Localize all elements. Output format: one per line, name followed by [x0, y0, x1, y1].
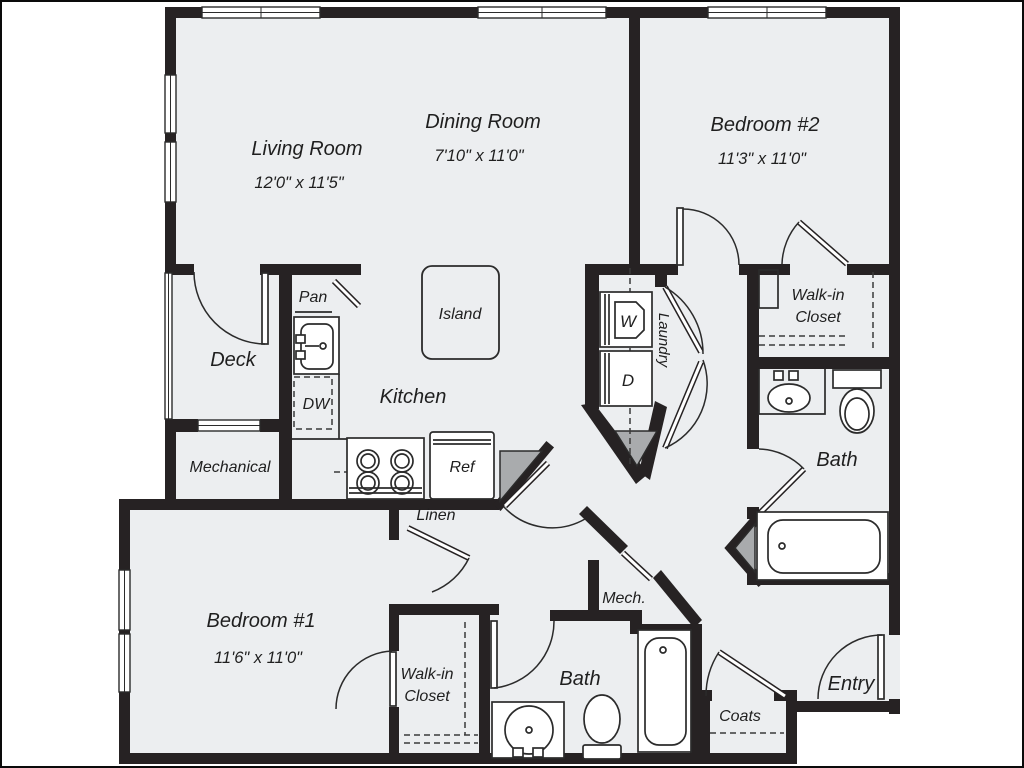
- laundry-label: Laundry: [655, 313, 672, 369]
- bath1-bathtub-icon: [638, 630, 691, 752]
- stove-icon: [347, 438, 424, 499]
- bedroom2-dims: 11'3" x 11'0": [718, 150, 807, 168]
- island-label: Island: [439, 306, 483, 323]
- living-room-dims: 12'0" x 11'5": [254, 174, 344, 192]
- refrigerator-label: Ref: [450, 459, 476, 476]
- washer-label: W: [620, 312, 638, 331]
- closet2-label-2: Closet: [795, 309, 841, 326]
- kitchen-sink-icon: [294, 317, 339, 374]
- pantry-label: Pan: [299, 289, 328, 306]
- window-bedroom2-top: [708, 7, 826, 18]
- floorplan-canvas: Living Room 12'0" x 11'5" Dining Room 7'…: [0, 0, 1024, 768]
- bath1-label: Bath: [559, 668, 600, 690]
- closet1-label-2: Closet: [404, 688, 450, 705]
- bath2-label: Bath: [816, 449, 857, 471]
- living-room-label: Living Room: [251, 138, 362, 160]
- bedroom2-label: Bedroom #2: [711, 114, 820, 136]
- dining-room-label: Dining Room: [425, 111, 541, 133]
- kitchen-label: Kitchen: [380, 386, 447, 408]
- window-dining-top: [478, 7, 606, 18]
- deck-label: Deck: [210, 349, 257, 371]
- bedroom1-label: Bedroom #1: [207, 610, 316, 632]
- dryer-label: D: [622, 371, 634, 390]
- dining-room-dims: 7'10" x 11'0": [434, 147, 524, 165]
- closet1-label-1: Walk-in: [400, 666, 453, 683]
- window-living-top: [202, 7, 320, 18]
- floorplan-drawing: Living Room 12'0" x 11'5" Dining Room 7'…: [2, 2, 1024, 768]
- closet2-label-1: Walk-in: [791, 287, 844, 304]
- mechanical-label: Mechanical: [190, 459, 271, 476]
- bath1-toilet-icon: [583, 695, 621, 759]
- mech-label: Mech.: [602, 590, 646, 607]
- dishwasher-label: DW: [303, 396, 332, 413]
- linen-label: Linen: [416, 507, 455, 524]
- coats-label: Coats: [719, 708, 761, 725]
- bath1-sink-icon: [492, 702, 564, 758]
- bath2-bathtub-icon: [757, 512, 888, 580]
- entry-label: Entry: [828, 673, 876, 695]
- bedroom1-dims: 11'6" x 11'0": [214, 649, 303, 667]
